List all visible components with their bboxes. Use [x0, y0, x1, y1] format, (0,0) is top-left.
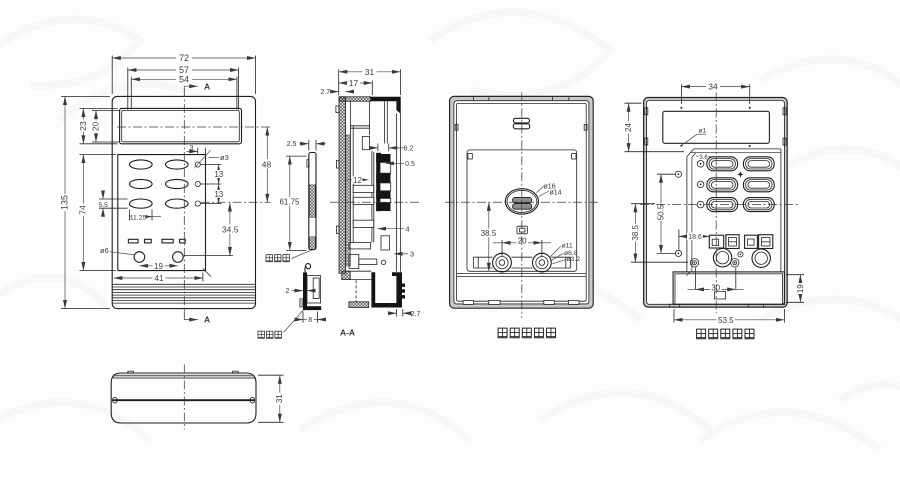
svg-text:23: 23 — [78, 121, 88, 131]
svg-text:3: 3 — [410, 249, 414, 258]
svg-text:34: 34 — [708, 82, 718, 92]
svg-text:2.7: 2.7 — [411, 311, 421, 318]
svg-text:12: 12 — [353, 176, 362, 185]
svg-text:54: 54 — [179, 74, 189, 84]
svg-text:24: 24 — [624, 123, 633, 132]
svg-text:13: 13 — [214, 170, 223, 179]
svg-text:2.5: 2.5 — [287, 141, 297, 148]
svg-text:ø3: ø3 — [220, 153, 229, 162]
svg-text:38.5: 38.5 — [631, 224, 640, 240]
svg-text:A: A — [204, 315, 210, 325]
svg-text:ø3.2: ø3.2 — [567, 256, 581, 263]
svg-text:8: 8 — [308, 317, 312, 324]
svg-text:34.5: 34.5 — [222, 224, 239, 234]
svg-text:2.7: 2.7 — [320, 89, 330, 96]
svg-text:6.2: 6.2 — [404, 146, 414, 153]
svg-text:4: 4 — [405, 224, 409, 233]
svg-text:50.5: 50.5 — [656, 204, 665, 220]
svg-text:19: 19 — [796, 284, 805, 293]
svg-text:38.5: 38.5 — [481, 229, 497, 238]
svg-text:61.75: 61.75 — [279, 198, 300, 207]
svg-text:2: 2 — [286, 288, 290, 295]
svg-text:41: 41 — [155, 274, 164, 283]
svg-text:13: 13 — [214, 190, 223, 199]
svg-text:A: A — [204, 81, 210, 91]
svg-text:31: 31 — [365, 67, 375, 77]
svg-text:19: 19 — [154, 262, 163, 271]
svg-text:A-A: A-A — [340, 328, 355, 338]
svg-text:72: 72 — [179, 53, 189, 63]
svg-text:11.25: 11.25 — [130, 215, 147, 222]
svg-text:53.5: 53.5 — [718, 316, 734, 325]
svg-text:48: 48 — [262, 159, 272, 169]
svg-text:ø1: ø1 — [699, 128, 707, 135]
svg-text:18.6: 18.6 — [688, 234, 702, 241]
svg-text:ø14: ø14 — [550, 190, 562, 197]
svg-text:74: 74 — [78, 205, 88, 215]
svg-text:20: 20 — [518, 237, 527, 246]
svg-text:5.5: 5.5 — [99, 202, 108, 209]
svg-text:31: 31 — [275, 394, 284, 403]
svg-text:ø6: ø6 — [100, 246, 109, 255]
svg-text:ø11: ø11 — [562, 242, 573, 249]
svg-text:3.6: 3.6 — [699, 155, 708, 161]
svg-text:20: 20 — [91, 122, 101, 132]
svg-text:17: 17 — [349, 78, 359, 88]
svg-text:135: 135 — [60, 195, 70, 210]
svg-text:0.5: 0.5 — [405, 161, 415, 168]
svg-text:3: 3 — [190, 145, 194, 152]
